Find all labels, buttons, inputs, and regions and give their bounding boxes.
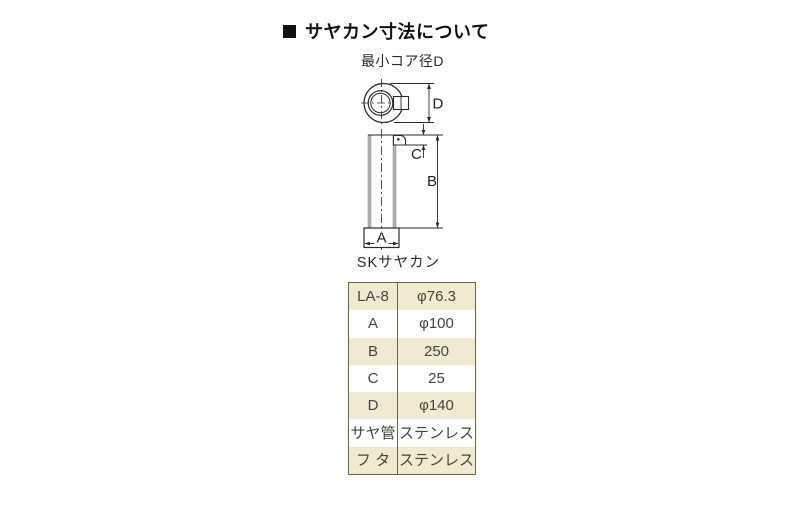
dimension-diagram: D C [335,48,465,268]
spec-row: フ タ ステンレス [349,447,476,475]
dim-label-b: B [427,173,437,190]
spec-label-cell: LA-8 [349,283,398,311]
pipe-wall-left [368,135,371,228]
spec-row: B 250 [349,338,476,365]
spec-label-cell: A [349,310,398,337]
title-square-icon [283,25,296,38]
latch-top-view [394,97,409,110]
dim-label-c: C [411,146,422,163]
spec-row: LA-8 φ76.3 [349,283,476,311]
spec-value-cell: ステンレス [398,447,476,475]
spec-value-cell: 250 [398,338,476,365]
page-title-text: サヤカン寸法について [305,18,489,44]
dimension-b-line: B [427,135,439,228]
spec-table: LA-8 φ76.3 A φ100 B 250 C 25 D φ140 サヤ管 … [348,282,476,475]
spec-label-cell: フ タ [349,447,398,475]
pipe-wall-right [393,135,396,228]
side-view: C B A [364,124,443,250]
spec-label-cell: D [349,392,398,419]
spec-label-cell: サヤ管 [349,419,398,446]
dimension-c-line: C [411,124,425,163]
spec-row: C 25 [349,365,476,392]
spec-label-cell: B [349,338,398,365]
dimension-d-line: D [427,84,443,123]
spec-value-cell: ステンレス [398,419,476,446]
sk-sayakan-label: SKサヤカン [335,251,462,272]
spec-row: サヤ管 ステンレス [349,419,476,446]
spec-row: D φ140 [349,392,476,419]
spec-value-cell: φ76.3 [398,283,476,311]
dim-label-a: A [377,230,387,247]
page: サヤカン寸法について 最小コア径D [0,0,800,509]
page-title: サヤカン寸法について [283,18,489,44]
top-view: D [361,79,444,127]
spec-row: A φ100 [349,310,476,337]
spec-value-cell: φ100 [398,310,476,337]
spec-value-cell: 25 [398,365,476,392]
spec-value-cell: φ140 [398,392,476,419]
latch-side-view [394,136,406,146]
dim-label-d: D [433,96,444,113]
spec-label-cell: C [349,365,398,392]
